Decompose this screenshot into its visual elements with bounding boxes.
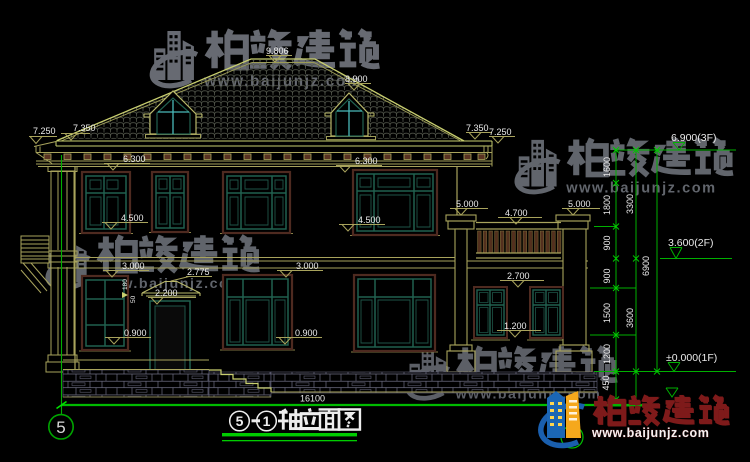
svg-text:7.250: 7.250 [489, 127, 512, 137]
svg-text:900: 900 [602, 235, 612, 250]
svg-text:6.300: 6.300 [123, 154, 146, 164]
svg-text:180: 180 [122, 279, 129, 290]
svg-text:9.806: 9.806 [266, 46, 289, 56]
svg-text:3300: 3300 [625, 194, 635, 214]
svg-text:3.000: 3.000 [122, 261, 145, 271]
svg-text:7.350: 7.350 [73, 123, 96, 133]
svg-text:4.500: 4.500 [121, 213, 144, 223]
svg-text:8.900: 8.900 [345, 74, 368, 84]
svg-text:5: 5 [56, 418, 65, 437]
svg-text:7.350: 7.350 [466, 123, 489, 133]
svg-text:5: 5 [236, 413, 244, 429]
svg-text:6.300: 6.300 [355, 156, 378, 166]
svg-text:1800: 1800 [602, 195, 612, 215]
svg-text:3600: 3600 [625, 308, 635, 328]
svg-text:7.250: 7.250 [33, 126, 56, 136]
svg-text:2.200: 2.200 [155, 288, 178, 298]
svg-text:0.900: 0.900 [124, 328, 147, 338]
svg-text:1: 1 [263, 413, 271, 429]
svg-text:4.500: 4.500 [358, 215, 381, 225]
svg-text:5.000: 5.000 [568, 199, 591, 209]
svg-text:2.700: 2.700 [507, 271, 530, 281]
svg-text:2.775: 2.775 [187, 267, 210, 277]
svg-text:1600: 1600 [602, 157, 612, 177]
svg-text:16100: 16100 [300, 394, 325, 404]
svg-text:1500: 1500 [602, 303, 612, 323]
svg-text:www.baijunjz.com: www.baijunjz.com [591, 426, 709, 440]
svg-text:1200: 1200 [602, 344, 612, 364]
svg-text:900: 900 [602, 268, 612, 283]
svg-text:6900: 6900 [641, 256, 651, 276]
svg-text:450: 450 [601, 375, 611, 390]
svg-text:50: 50 [130, 295, 137, 303]
svg-text:0.900: 0.900 [295, 328, 318, 338]
svg-text:1.200: 1.200 [504, 321, 527, 331]
svg-text:4.700: 4.700 [505, 208, 528, 218]
svg-text:3.000: 3.000 [296, 261, 319, 271]
svg-text:5.000: 5.000 [456, 199, 479, 209]
